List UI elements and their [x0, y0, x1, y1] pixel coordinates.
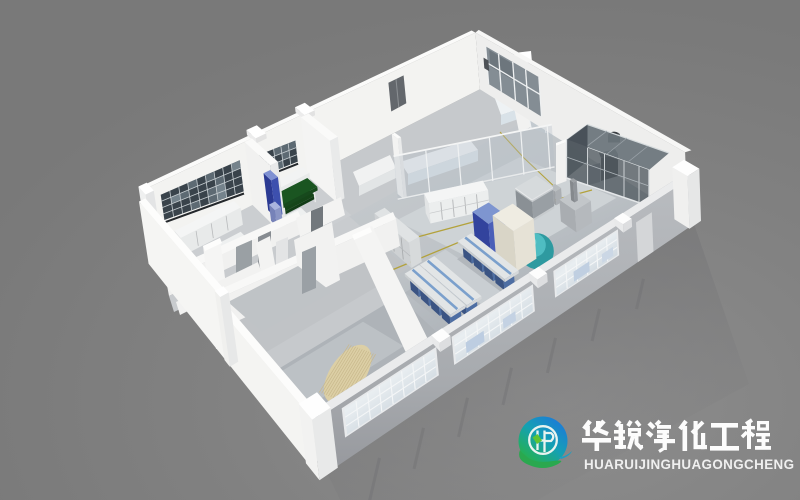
svg-text:HUARUIJINGHUAGONGCHENG: HUARUIJINGHUAGONGCHENG	[584, 457, 794, 472]
